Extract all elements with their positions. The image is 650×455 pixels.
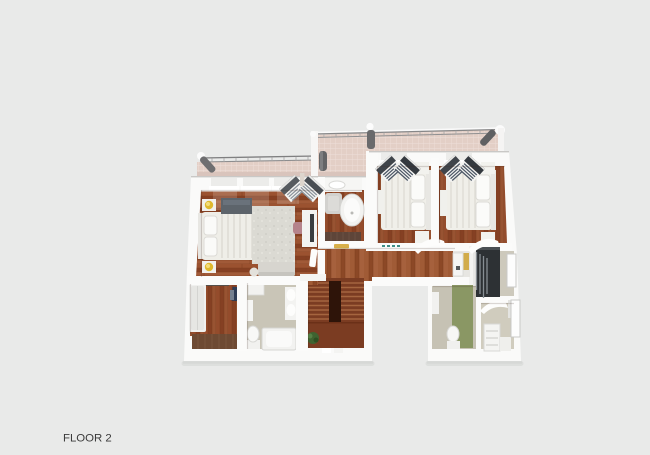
svg-text:FLOOR 2: FLOOR 2 — [63, 433, 112, 445]
